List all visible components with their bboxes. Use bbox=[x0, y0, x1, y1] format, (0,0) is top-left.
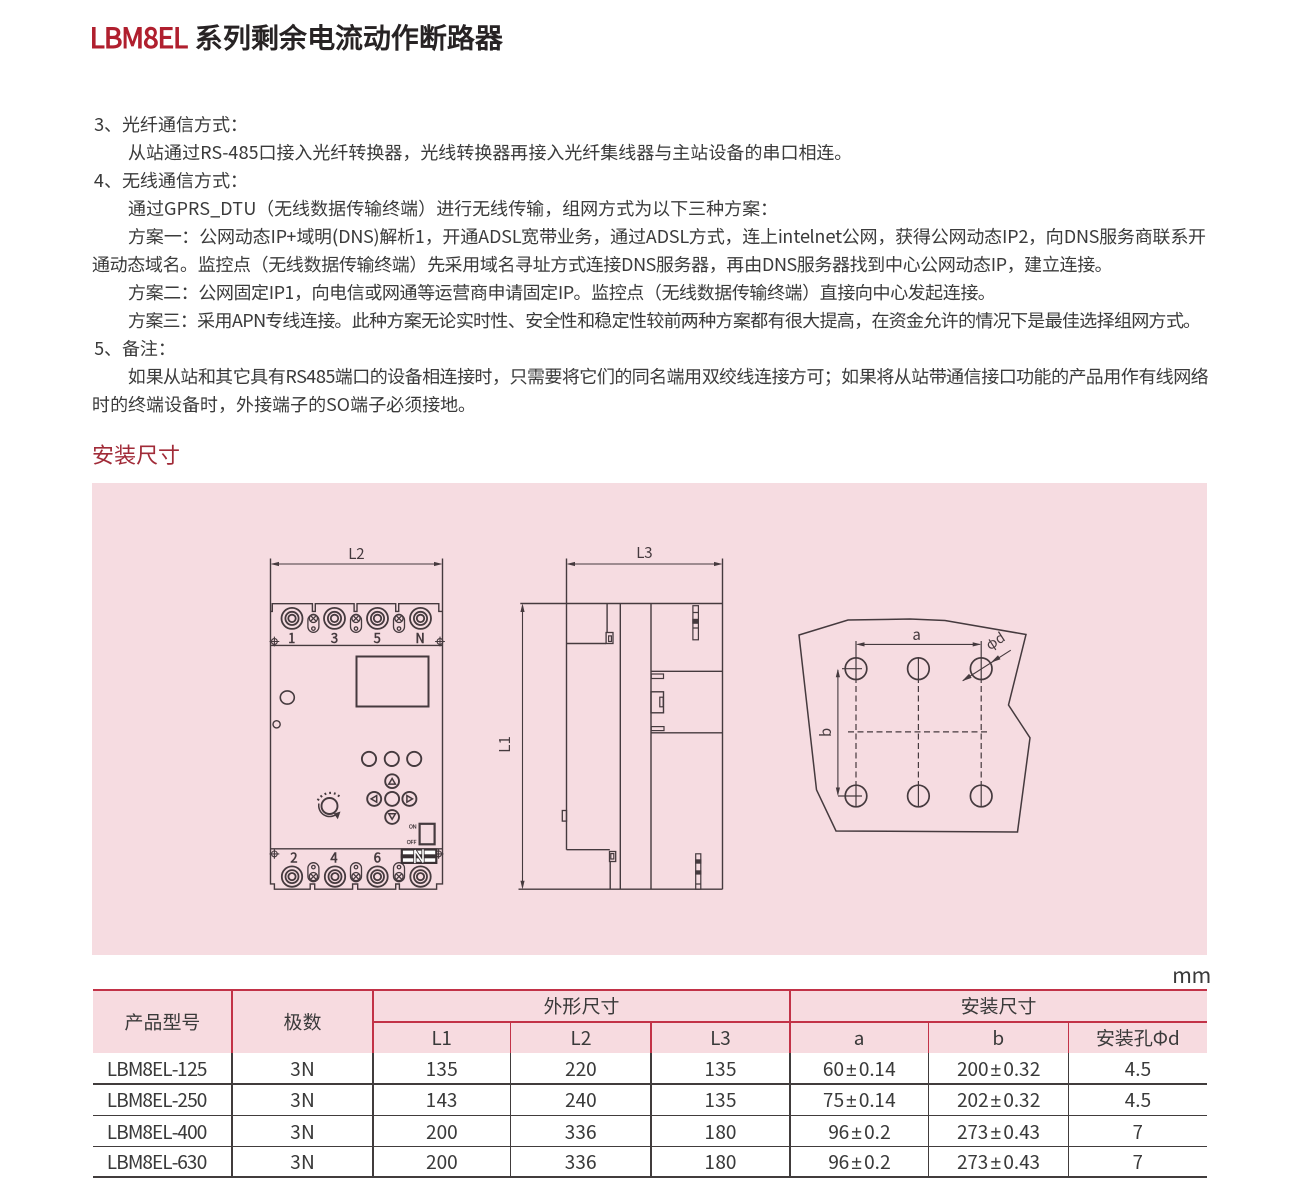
svg-text:b: b bbox=[815, 727, 836, 737]
svg-text:3: 3 bbox=[330, 628, 338, 647]
svg-text:a: a bbox=[912, 624, 920, 645]
svg-text:L2: L2 bbox=[348, 543, 364, 564]
svg-text:5: 5 bbox=[372, 628, 380, 647]
svg-text:N: N bbox=[415, 628, 424, 647]
svg-text:L1: L1 bbox=[494, 736, 515, 752]
svg-text:4: 4 bbox=[330, 848, 338, 867]
svg-text:ON: ON bbox=[409, 822, 417, 830]
svg-text:OFF: OFF bbox=[407, 838, 417, 846]
svg-text:L3: L3 bbox=[636, 542, 652, 563]
svg-text:6: 6 bbox=[374, 848, 382, 867]
svg-text:2: 2 bbox=[290, 848, 298, 867]
svg-text:1: 1 bbox=[288, 628, 295, 647]
